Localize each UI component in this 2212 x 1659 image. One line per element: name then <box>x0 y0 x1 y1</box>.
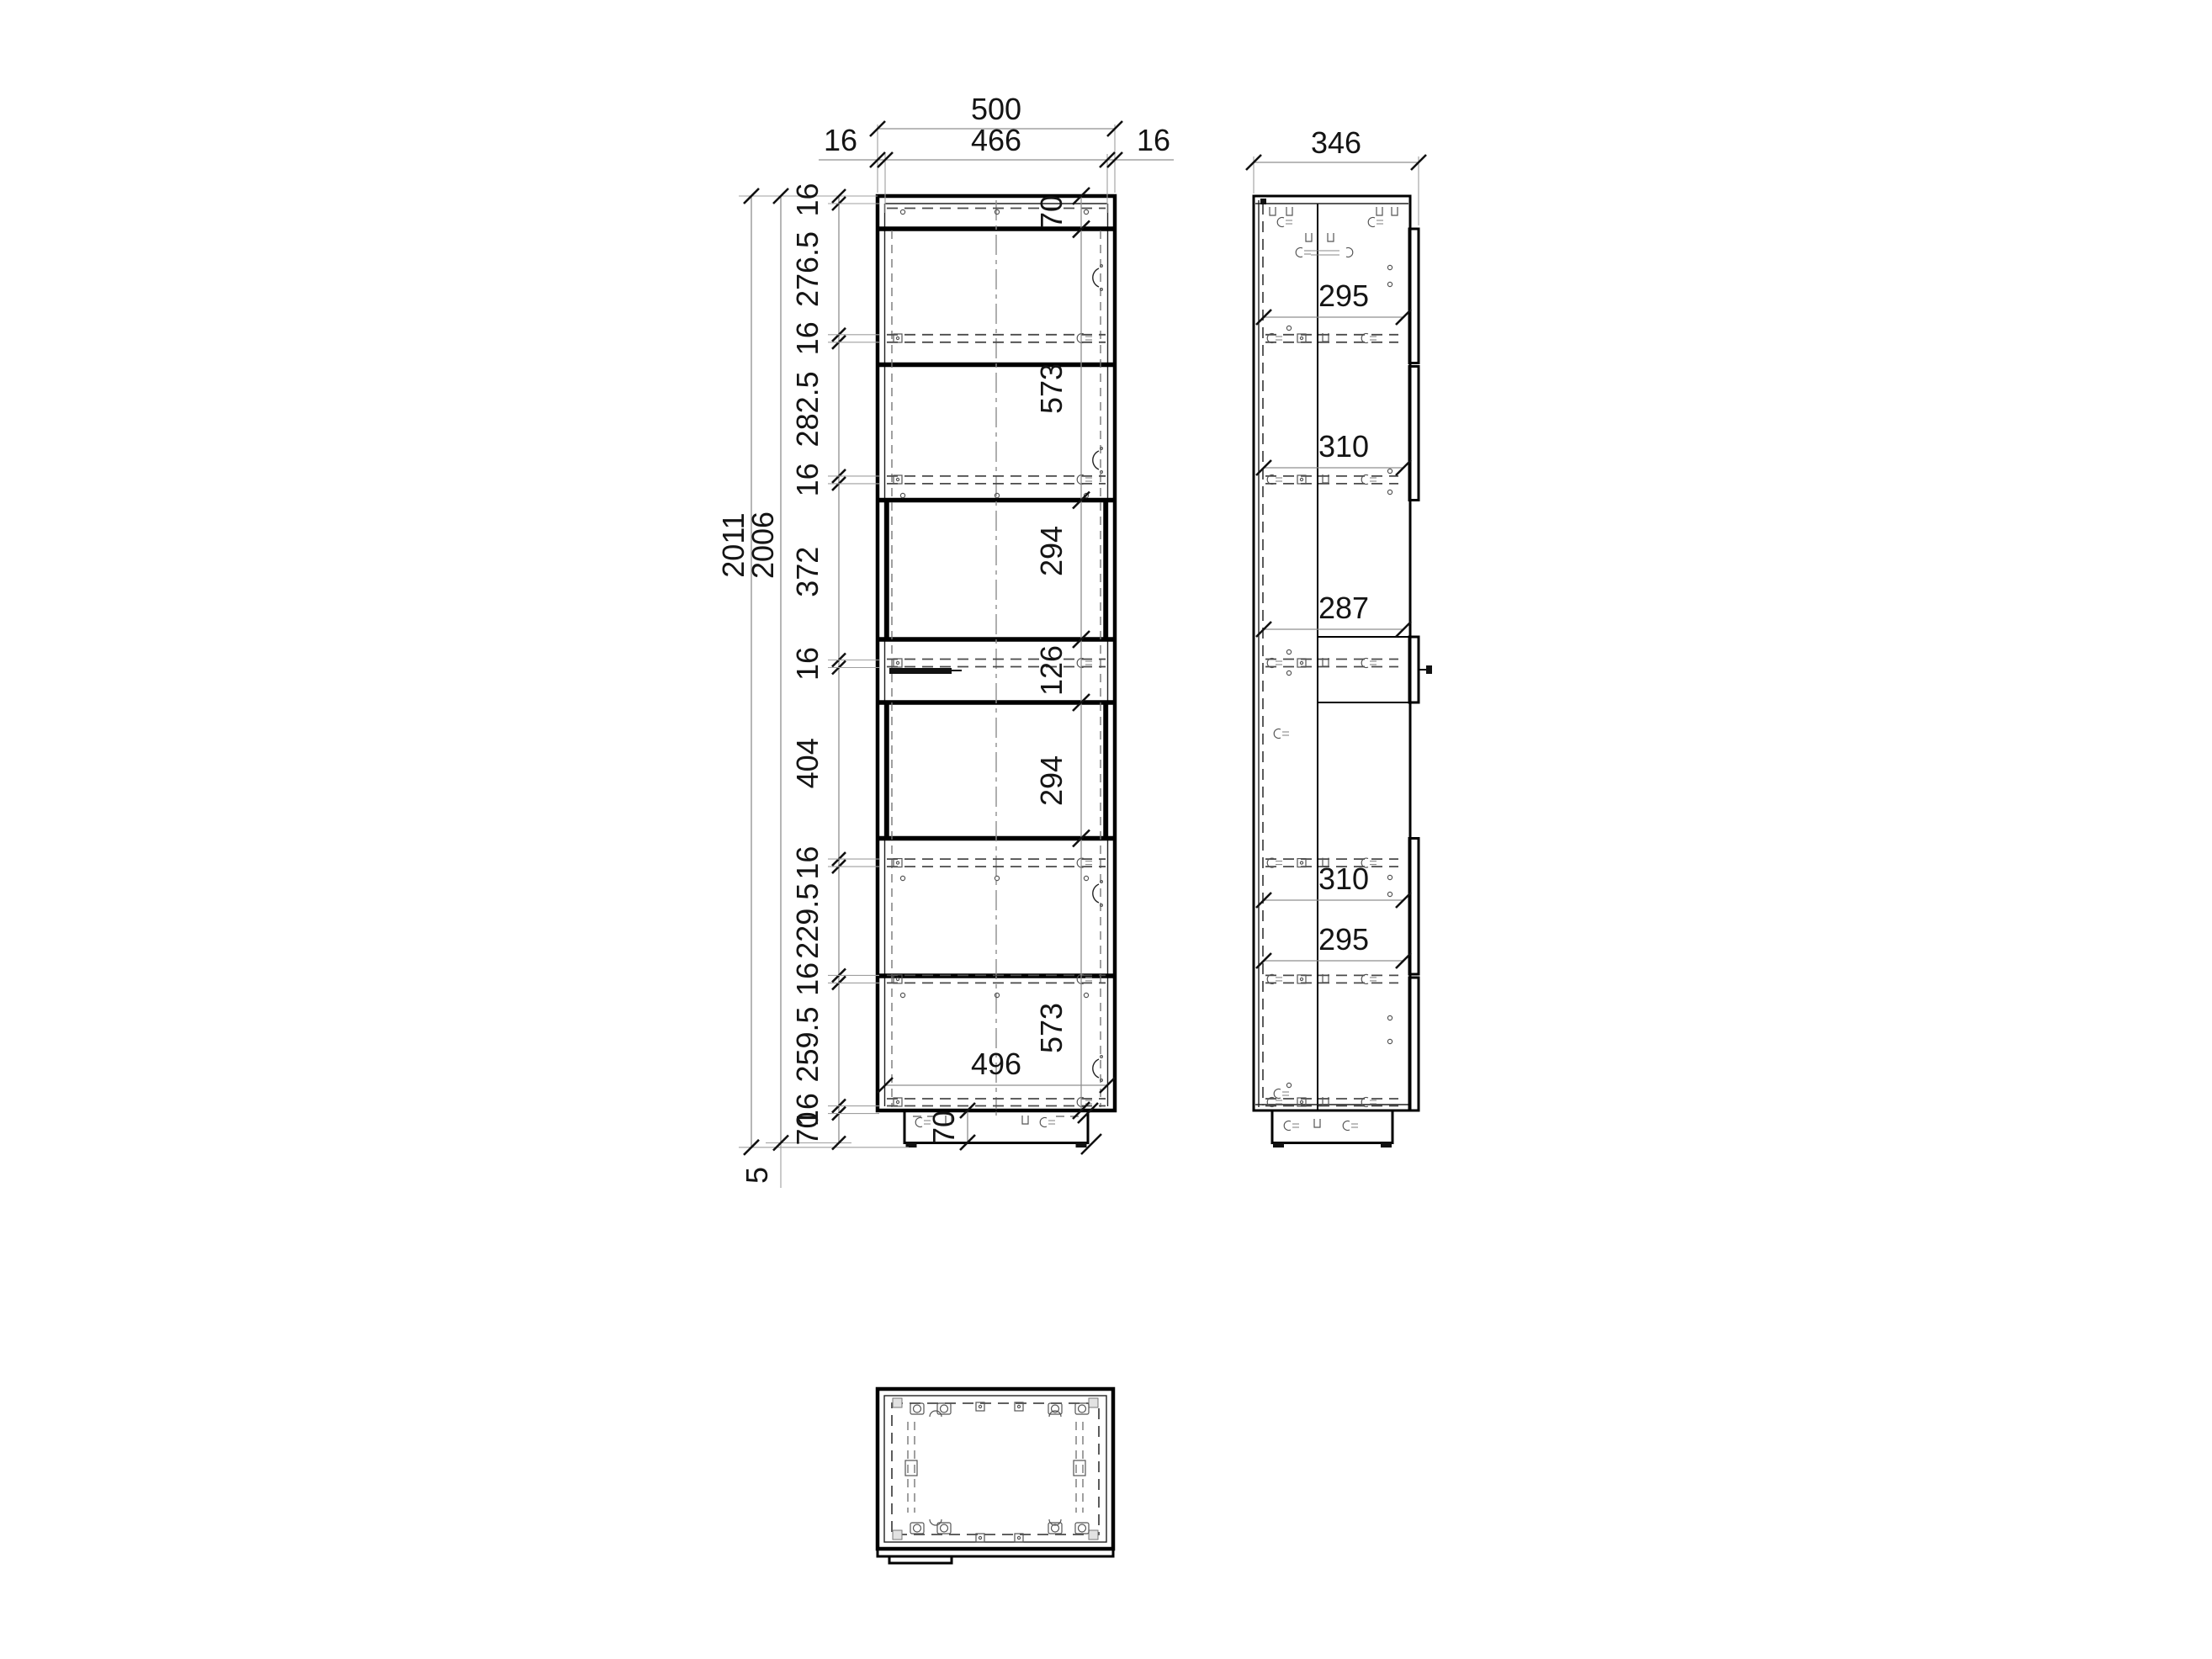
dim-label: 276.5 <box>790 231 825 307</box>
dim-label: 573 <box>1034 1003 1069 1053</box>
dim-label: 70 <box>1034 195 1069 229</box>
front-view <box>878 196 1115 1148</box>
dim-label: 295 <box>1318 278 1369 313</box>
dim-label: 573 <box>1034 363 1069 414</box>
side-dimensions: 346295310287310295 <box>1246 125 1426 968</box>
dim-label: 16 <box>790 183 825 216</box>
dim-label: 496 <box>971 1047 1021 1081</box>
dim-label: 70 <box>926 1110 961 1144</box>
dim-label: 16 <box>824 123 857 157</box>
dim-label: 466 <box>971 123 1021 157</box>
cabinet-technical-drawing: 500466161620112006516276.516282.51637216… <box>0 0 2212 1659</box>
dim-label: 294 <box>1034 526 1069 576</box>
dim-label: 2006 <box>745 511 780 579</box>
dim-label: 259.5 <box>790 1006 825 1082</box>
dim-label: 70 <box>790 1111 825 1145</box>
dim-label: 16 <box>790 321 825 355</box>
dim-label: 500 <box>971 92 1021 126</box>
dim-label: 126 <box>1034 645 1069 696</box>
dim-label: 310 <box>1318 429 1369 464</box>
dim-label: 287 <box>1318 591 1369 625</box>
dim-label: 310 <box>1318 861 1369 896</box>
dim-label: 16 <box>790 647 825 681</box>
dim-label: 282.5 <box>790 371 825 447</box>
side-view <box>1254 196 1432 1148</box>
dim-label: 16 <box>790 846 825 880</box>
bottom-view <box>878 1389 1113 1563</box>
dim-label: 295 <box>1318 922 1369 957</box>
dim-label: 372 <box>790 547 825 597</box>
dim-label: 16 <box>1137 123 1170 157</box>
dim-label: 229.5 <box>790 883 825 959</box>
dim-label: 16 <box>790 962 825 996</box>
dim-label: 5 <box>740 1167 774 1184</box>
dim-label: 16 <box>790 463 825 496</box>
dim-label: 294 <box>1034 755 1069 806</box>
dim-label: 404 <box>790 738 825 788</box>
drawing-canvas: 500466161620112006516276.516282.51637216… <box>0 0 2212 1659</box>
dim-label: 346 <box>1311 125 1361 160</box>
